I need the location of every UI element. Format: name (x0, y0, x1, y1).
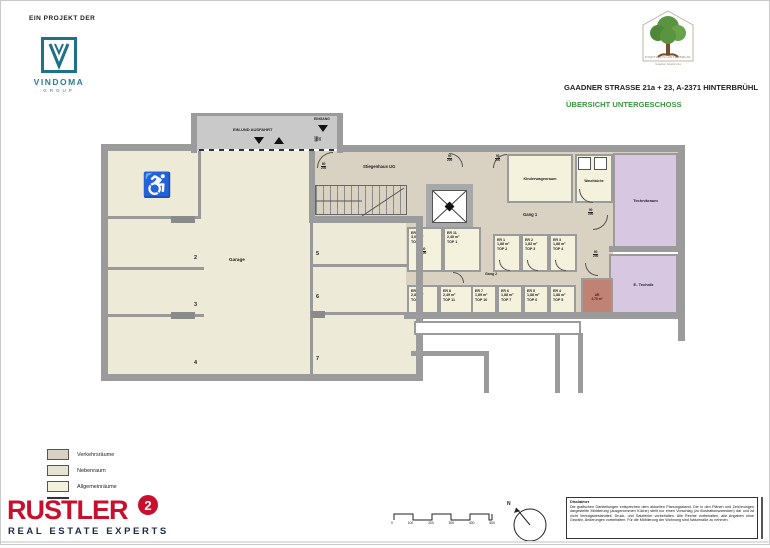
elevator-shaft (426, 184, 473, 229)
arrow-up-icon (274, 137, 284, 144)
entrance-arrow-icon (318, 125, 328, 132)
parking-divider (310, 223, 313, 374)
pillar (171, 216, 195, 223)
parking-divider (311, 264, 418, 267)
gang2-label: Gang 2 (485, 272, 497, 276)
parking-number: 5 (316, 251, 319, 257)
disclaimer-text: Die grafischen Darstellungen entsprechen… (570, 505, 754, 523)
elevator-icon (433, 191, 466, 222)
storage-room: ER 82,49 m²TOP 11 (439, 285, 473, 314)
parking-number: 4 (194, 360, 197, 366)
retaining-wall (555, 333, 560, 393)
door-label: 90200 (495, 155, 500, 163)
parking-divider (311, 312, 418, 315)
wall (101, 374, 423, 381)
legend-item-neben: Nebenraum (47, 465, 106, 476)
legend-item-verkehr: Verkehrsräume (47, 449, 114, 460)
legend-item-allgemein: Allgemeinräume (47, 481, 117, 492)
rustler-wordmark: RUSTLER (7, 495, 128, 525)
arrow-down-icon (254, 137, 264, 144)
handicap-space: ♿ (108, 151, 201, 219)
pillar (171, 312, 195, 319)
wheelchair-icon: ♿ (142, 171, 172, 200)
room-technik: Technikraum (613, 153, 678, 248)
legend-label: Allgemeinräume (77, 484, 117, 490)
north-arrow: N (501, 501, 553, 543)
scale-tick: 0 (391, 521, 393, 525)
rustler-logo: RUSTLER 2 REAL ESTATE EXPERTS (7, 495, 128, 526)
door-label: 90200 (588, 209, 593, 217)
wall (191, 113, 197, 153)
parking-divider (108, 267, 204, 270)
pillar (311, 311, 325, 318)
parking-number: 7 (316, 356, 319, 362)
garage-label: Garage (229, 257, 245, 262)
entrance-label: EINGANG (314, 117, 330, 121)
parking-number: 2 (194, 255, 197, 261)
retaining-wall (578, 333, 583, 393)
ramp-label: EIN-UND AUSFAHRT (233, 127, 272, 132)
rustler-tagline: REAL ESTATE EXPERTS (8, 526, 169, 537)
scale-tick: 500 (489, 521, 495, 525)
parking-number: 3 (194, 302, 197, 308)
door-label: 80200 (321, 163, 326, 171)
rustler-squared-icon: 2 (138, 495, 158, 515)
wall (309, 151, 315, 223)
disclaimer-box: Disclaimer Die grafischen Darstellungen … (566, 497, 758, 539)
storage-room: ER 61,88 m²TOP 7 (497, 285, 523, 314)
wall (101, 144, 108, 381)
gang1-label: Gang 1 (523, 212, 537, 217)
scale-tick: 100 (408, 521, 414, 525)
retaining-wall (484, 351, 489, 393)
storage-room: ER 92,84 m²TOP 8 (407, 285, 439, 314)
retaining-wall (411, 351, 489, 356)
floor-plan: EIN-UND AUSFAHRT EINGANG Gang 1 Gang 2 S… (1, 1, 770, 546)
scale-tick: 300 (448, 521, 454, 525)
wall (337, 145, 685, 152)
room-etechnik: E- Technik (609, 254, 678, 314)
legend-swatch (47, 449, 69, 460)
wall (191, 113, 343, 116)
washing-machine-icon (578, 157, 591, 170)
wall (609, 246, 685, 252)
storage-room: ER 112,48 m²TOP 1 (443, 227, 481, 272)
wall (101, 144, 197, 151)
room-ar: AR 2,78 m² (581, 278, 613, 316)
door-label: 90200 (593, 251, 598, 259)
wall (309, 216, 423, 223)
scale-bar: 0 100 200 300 400 500 (391, 509, 501, 535)
storage-room: ER 41,88 m²TOP 5 (549, 285, 576, 314)
stairs (315, 185, 407, 215)
plan-stamp-strip (761, 497, 763, 539)
scale-tick: 400 (469, 521, 475, 525)
wall (404, 312, 685, 319)
legend-label: Nebenraum (77, 468, 106, 474)
storage-room: ER 71,89 m²TOP 10 (471, 285, 497, 314)
door-label: 90200 (313, 136, 321, 141)
legend-label: Verkehrsräume (77, 452, 114, 458)
scale-tick: 200 (428, 521, 434, 525)
legend-swatch (47, 481, 69, 492)
page-bottom-rule (1, 541, 770, 543)
legend-swatch (47, 465, 69, 476)
washing-machine-icon (594, 157, 607, 170)
room-kinderwagen: Kinderwagenraum (507, 154, 573, 203)
door-label: 90200 (447, 155, 452, 163)
stairwell-label: Stiegenhaus UG (363, 164, 395, 169)
parking-number: 6 (316, 294, 319, 300)
storage-room: ER 51,88 m²TOP 6 (523, 285, 549, 314)
north-label: N (507, 501, 511, 507)
